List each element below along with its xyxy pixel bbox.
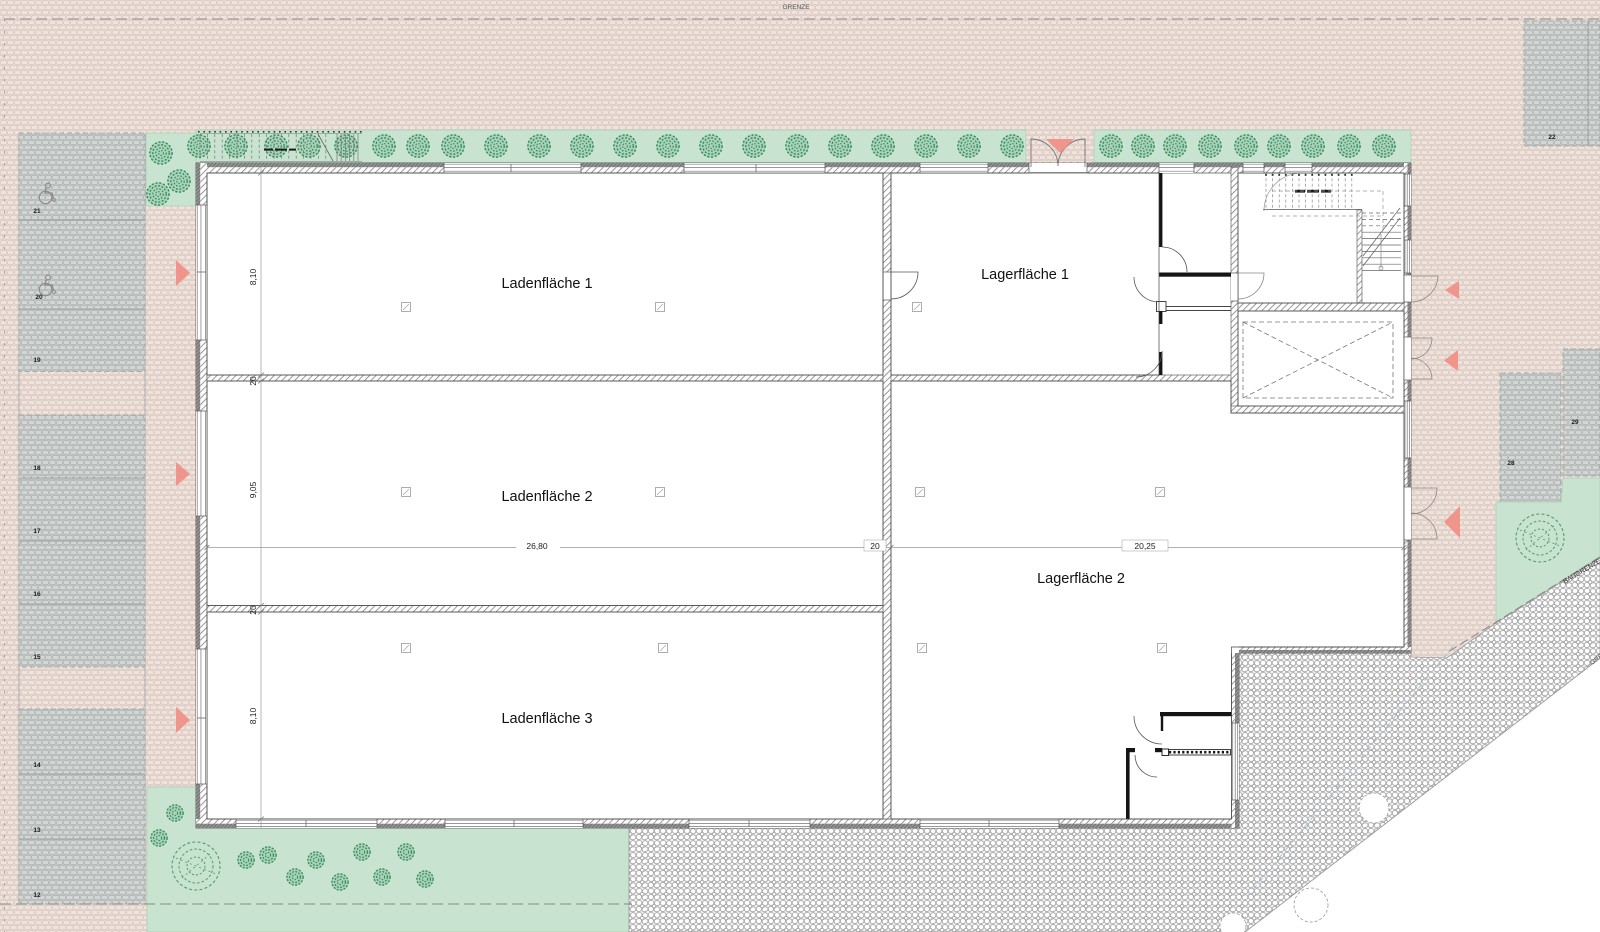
svg-text:13: 13 <box>33 827 41 834</box>
svg-text:20: 20 <box>870 541 880 551</box>
svg-text:20: 20 <box>248 605 258 615</box>
svg-text:20,25: 20,25 <box>1134 541 1156 551</box>
svg-text:17: 17 <box>33 528 41 535</box>
svg-text:Ladenfläche 3: Ladenfläche 3 <box>501 711 592 727</box>
svg-text:8,10: 8,10 <box>248 268 258 285</box>
svg-text:14: 14 <box>33 762 41 769</box>
svg-text:Ladenfläche 1: Ladenfläche 1 <box>501 276 592 292</box>
svg-text:28: 28 <box>1507 460 1515 467</box>
svg-text:20: 20 <box>248 376 258 386</box>
svg-text:Lagerfläche 1: Lagerfläche 1 <box>981 267 1069 283</box>
svg-text:18: 18 <box>33 465 41 472</box>
svg-text:GRENZE: GRENZE <box>782 4 810 11</box>
svg-text:Lagerfläche 2: Lagerfläche 2 <box>1037 571 1125 587</box>
svg-text:19: 19 <box>33 357 41 364</box>
svg-text:Ladenfläche 2: Ladenfläche 2 <box>501 489 592 505</box>
svg-text:21: 21 <box>33 208 41 215</box>
svg-text:29: 29 <box>1571 419 1579 426</box>
svg-text:16: 16 <box>33 591 41 598</box>
svg-text:9,05: 9,05 <box>248 481 258 498</box>
svg-text:15: 15 <box>33 654 41 661</box>
svg-text:22: 22 <box>1548 134 1556 141</box>
svg-text:12: 12 <box>33 892 41 899</box>
svg-text:26,80: 26,80 <box>526 541 548 551</box>
svg-text:8,10: 8,10 <box>248 707 258 724</box>
